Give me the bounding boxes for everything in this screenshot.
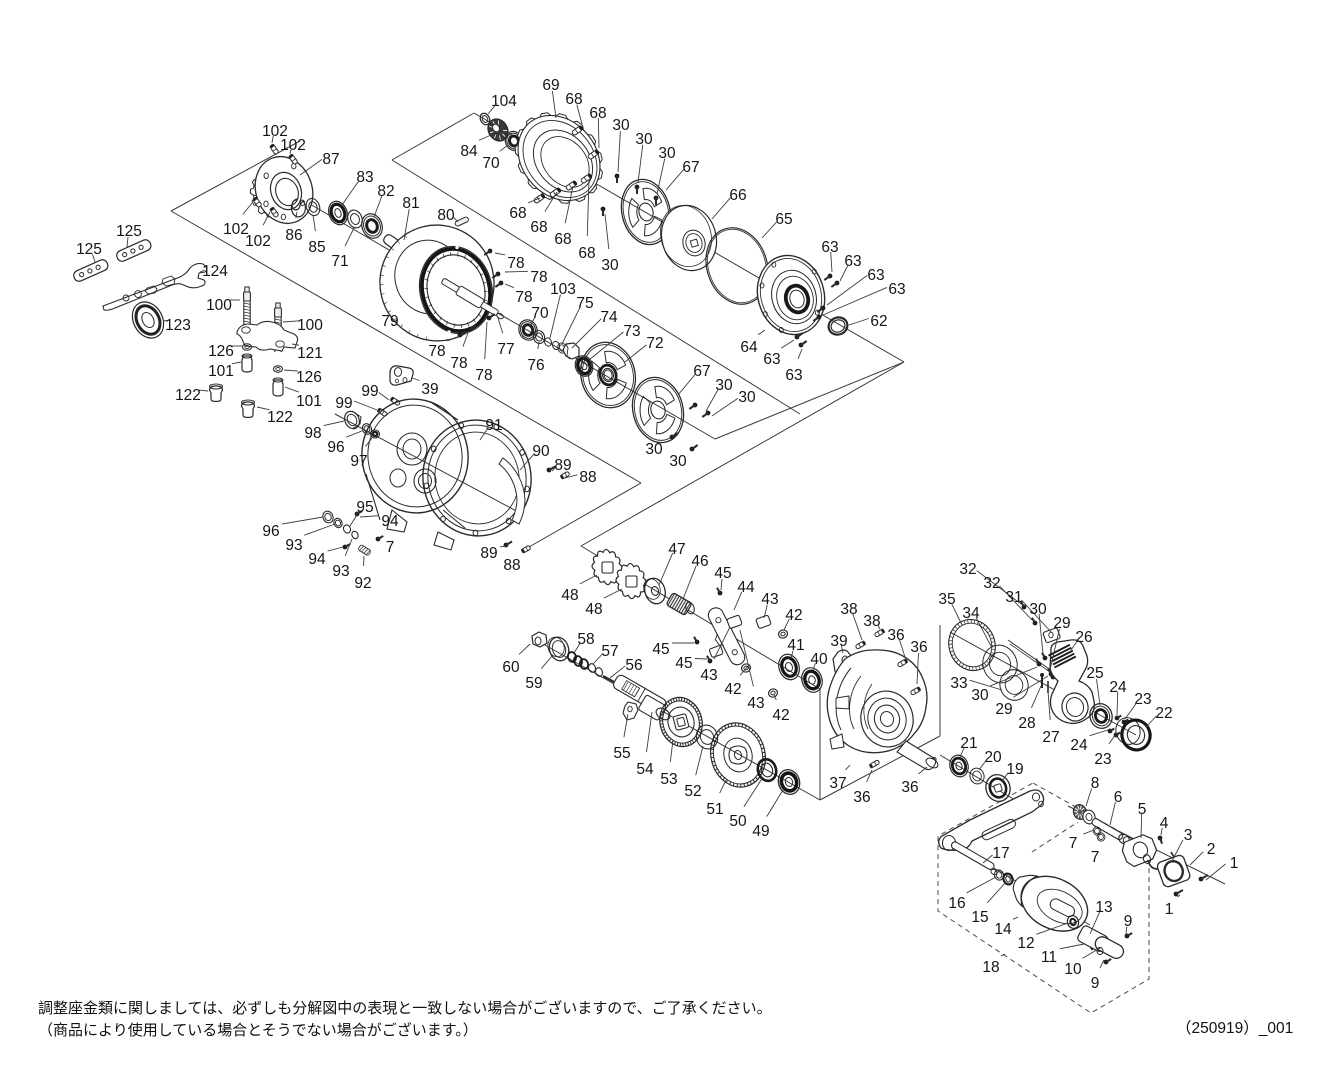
svg-text:52: 52 — [684, 783, 701, 800]
svg-text:30: 30 — [715, 377, 733, 394]
svg-text:123: 123 — [165, 317, 191, 334]
svg-text:92: 92 — [354, 575, 371, 592]
svg-text:78: 78 — [530, 269, 547, 286]
svg-text:32: 32 — [959, 561, 976, 578]
svg-text:71: 71 — [331, 253, 348, 270]
svg-text:11: 11 — [1041, 949, 1057, 966]
svg-text:30: 30 — [658, 145, 676, 162]
svg-text:18: 18 — [982, 959, 999, 976]
svg-text:20: 20 — [984, 749, 1002, 766]
svg-text:31: 31 — [1005, 589, 1022, 606]
svg-text:89: 89 — [554, 457, 571, 474]
svg-text:95: 95 — [356, 499, 373, 516]
svg-text:43: 43 — [700, 667, 717, 684]
svg-text:（商品により使用している場合とそうでない場合がございます。）: （商品により使用している場合とそうでない場合がございます。） — [38, 1021, 478, 1039]
svg-text:24: 24 — [1109, 679, 1127, 696]
svg-text:70: 70 — [482, 155, 500, 172]
svg-text:78: 78 — [428, 343, 445, 360]
svg-text:41: 41 — [787, 637, 804, 654]
svg-text:69: 69 — [542, 77, 559, 94]
svg-text:30: 30 — [635, 131, 653, 148]
svg-text:22: 22 — [1155, 705, 1172, 722]
svg-text:63: 63 — [867, 267, 884, 284]
svg-text:46: 46 — [691, 553, 708, 570]
svg-text:81: 81 — [402, 195, 419, 212]
svg-text:87: 87 — [322, 151, 339, 168]
svg-text:78: 78 — [450, 355, 467, 372]
svg-text:94: 94 — [308, 551, 326, 568]
svg-text:76: 76 — [527, 357, 544, 374]
svg-text:13: 13 — [1095, 899, 1112, 916]
svg-text:73: 73 — [623, 323, 640, 340]
svg-text:68: 68 — [554, 231, 571, 248]
svg-text:104: 104 — [491, 93, 517, 110]
svg-text:121: 121 — [297, 345, 323, 362]
svg-text:90: 90 — [532, 443, 550, 460]
svg-text:78: 78 — [507, 255, 524, 272]
svg-text:17: 17 — [992, 845, 1009, 862]
svg-text:40: 40 — [810, 651, 828, 668]
svg-text:36: 36 — [910, 639, 927, 656]
svg-text:125: 125 — [76, 241, 102, 258]
svg-text:91: 91 — [485, 417, 502, 434]
svg-text:126: 126 — [208, 343, 234, 360]
svg-text:65: 65 — [775, 211, 792, 228]
svg-text:83: 83 — [356, 169, 373, 186]
svg-text:37: 37 — [829, 775, 846, 792]
svg-text:94: 94 — [381, 513, 399, 530]
svg-text:42: 42 — [772, 707, 789, 724]
svg-text:125: 125 — [116, 223, 142, 240]
svg-text:126: 126 — [296, 369, 322, 386]
svg-text:88: 88 — [503, 557, 520, 574]
svg-text:124: 124 — [202, 263, 228, 280]
svg-text:7: 7 — [1069, 835, 1078, 852]
svg-text:84: 84 — [460, 143, 478, 160]
svg-text:68: 68 — [530, 219, 547, 236]
svg-text:39: 39 — [421, 381, 438, 398]
svg-text:10: 10 — [1064, 961, 1082, 978]
svg-text:4: 4 — [1160, 815, 1169, 832]
svg-text:30: 30 — [738, 389, 756, 406]
svg-text:27: 27 — [1042, 729, 1059, 746]
svg-text:101: 101 — [296, 393, 322, 410]
svg-text:68: 68 — [565, 91, 582, 108]
svg-text:100: 100 — [297, 317, 323, 334]
svg-text:100: 100 — [206, 297, 232, 314]
svg-text:68: 68 — [578, 245, 595, 262]
svg-text:30: 30 — [669, 453, 687, 470]
svg-text:45: 45 — [652, 641, 669, 658]
svg-text:93: 93 — [285, 537, 302, 554]
svg-text:30: 30 — [645, 441, 663, 458]
svg-text:66: 66 — [729, 187, 746, 204]
svg-text:88: 88 — [579, 469, 596, 486]
svg-text:30: 30 — [971, 687, 989, 704]
svg-text:72: 72 — [646, 335, 663, 352]
svg-text:103: 103 — [550, 281, 576, 298]
svg-text:78: 78 — [475, 367, 492, 384]
svg-text:調整座金類に関しましては、必ずしも分解図中の表現と一致しない: 調整座金類に関しましては、必ずしも分解図中の表現と一致しない場合がございますので… — [38, 999, 772, 1017]
svg-text:29: 29 — [995, 701, 1012, 718]
svg-text:63: 63 — [785, 367, 802, 384]
svg-text:12: 12 — [1017, 935, 1034, 952]
svg-text:7: 7 — [1091, 849, 1100, 866]
svg-text:38: 38 — [840, 601, 857, 618]
svg-text:67: 67 — [682, 159, 699, 176]
svg-text:36: 36 — [887, 627, 904, 644]
svg-text:51: 51 — [706, 801, 723, 818]
svg-text:77: 77 — [497, 341, 514, 358]
svg-text:80: 80 — [437, 207, 455, 224]
svg-text:1: 1 — [1230, 855, 1239, 872]
svg-text:44: 44 — [737, 579, 755, 596]
svg-text:47: 47 — [668, 541, 685, 558]
svg-text:98: 98 — [304, 425, 321, 442]
svg-text:8: 8 — [1091, 775, 1100, 792]
svg-text:62: 62 — [870, 313, 887, 330]
svg-text:58: 58 — [577, 631, 594, 648]
svg-text:63: 63 — [888, 281, 905, 298]
svg-text:24: 24 — [1070, 737, 1088, 754]
svg-text:122: 122 — [175, 387, 201, 404]
svg-text:25: 25 — [1086, 665, 1103, 682]
svg-text:45: 45 — [675, 655, 692, 672]
svg-text:54: 54 — [636, 761, 654, 778]
svg-text:30: 30 — [601, 257, 619, 274]
svg-text:55: 55 — [613, 745, 630, 762]
svg-text:7: 7 — [386, 539, 395, 556]
svg-text:79: 79 — [381, 313, 398, 330]
svg-text:45: 45 — [714, 565, 731, 582]
svg-text:57: 57 — [601, 643, 618, 660]
svg-text:82: 82 — [377, 183, 394, 200]
svg-text:93: 93 — [332, 563, 349, 580]
svg-text:56: 56 — [625, 657, 642, 674]
svg-text:97: 97 — [350, 453, 367, 470]
svg-text:53: 53 — [660, 771, 677, 788]
svg-text:102: 102 — [280, 137, 306, 154]
svg-text:38: 38 — [863, 613, 880, 630]
svg-text:63: 63 — [763, 351, 780, 368]
svg-text:74: 74 — [600, 309, 618, 326]
svg-text:63: 63 — [821, 239, 838, 256]
svg-text:89: 89 — [480, 545, 497, 562]
svg-text:30: 30 — [612, 117, 630, 134]
svg-text:43: 43 — [747, 695, 764, 712]
svg-text:26: 26 — [1075, 629, 1092, 646]
svg-text:99: 99 — [361, 383, 378, 400]
svg-text:39: 39 — [830, 633, 847, 650]
svg-text:49: 49 — [752, 823, 769, 840]
svg-text:3: 3 — [1184, 827, 1193, 844]
svg-text:64: 64 — [740, 339, 758, 356]
svg-text:2: 2 — [1207, 841, 1216, 858]
svg-text:36: 36 — [901, 779, 918, 796]
svg-text:42: 42 — [724, 681, 741, 698]
svg-text:122: 122 — [267, 409, 293, 426]
svg-text:1: 1 — [1165, 901, 1174, 918]
svg-text:30: 30 — [1029, 601, 1047, 618]
svg-text:19: 19 — [1006, 761, 1023, 778]
svg-text:59: 59 — [525, 675, 542, 692]
svg-text:9: 9 — [1124, 913, 1133, 930]
svg-text:60: 60 — [502, 659, 520, 676]
svg-text:96: 96 — [327, 439, 344, 456]
svg-text:9: 9 — [1091, 975, 1100, 992]
svg-text:86: 86 — [285, 227, 302, 244]
svg-text:16: 16 — [948, 895, 965, 912]
svg-text:14: 14 — [994, 921, 1012, 938]
svg-text:85: 85 — [308, 239, 325, 256]
svg-text:68: 68 — [509, 205, 526, 222]
svg-text:99: 99 — [335, 395, 352, 412]
svg-text:23: 23 — [1134, 691, 1151, 708]
svg-text:33: 33 — [950, 675, 967, 692]
svg-text:50: 50 — [729, 813, 747, 830]
svg-text:29: 29 — [1053, 615, 1070, 632]
svg-text:43: 43 — [761, 591, 778, 608]
svg-text:102: 102 — [245, 233, 271, 250]
svg-text:23: 23 — [1094, 751, 1111, 768]
svg-text:101: 101 — [208, 363, 234, 380]
svg-text:48: 48 — [561, 587, 578, 604]
svg-text:32: 32 — [983, 575, 1000, 592]
svg-text:78: 78 — [515, 289, 532, 306]
svg-text:28: 28 — [1018, 715, 1035, 732]
svg-text:48: 48 — [585, 601, 602, 618]
svg-text:67: 67 — [693, 363, 710, 380]
svg-text:36: 36 — [853, 789, 870, 806]
svg-text:96: 96 — [262, 523, 279, 540]
svg-text:15: 15 — [971, 909, 988, 926]
svg-text:（250919）_001: （250919）_001 — [1176, 1020, 1293, 1037]
